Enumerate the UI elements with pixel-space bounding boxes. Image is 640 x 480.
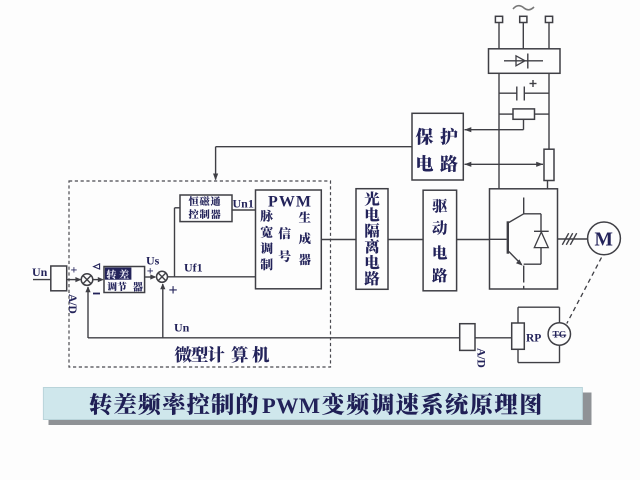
svg-text:+: + [147, 264, 154, 278]
svg-text:PWM: PWM [268, 194, 311, 211]
svg-text:A/D: A/D [66, 294, 78, 314]
svg-text:Un1: Un1 [233, 197, 254, 211]
svg-text:TG: TG [553, 331, 567, 341]
svg-text:+: + [71, 263, 78, 277]
svg-text:RP: RP [526, 333, 541, 345]
svg-text:Un: Un [32, 265, 48, 279]
svg-text:M: M [595, 230, 613, 251]
svg-text:Un: Un [174, 321, 190, 335]
svg-text:PWM: PWM [262, 393, 320, 418]
svg-text:A/D: A/D [475, 348, 487, 368]
svg-text:Uf1: Uf1 [184, 261, 203, 275]
svg-text:+: + [169, 282, 178, 299]
